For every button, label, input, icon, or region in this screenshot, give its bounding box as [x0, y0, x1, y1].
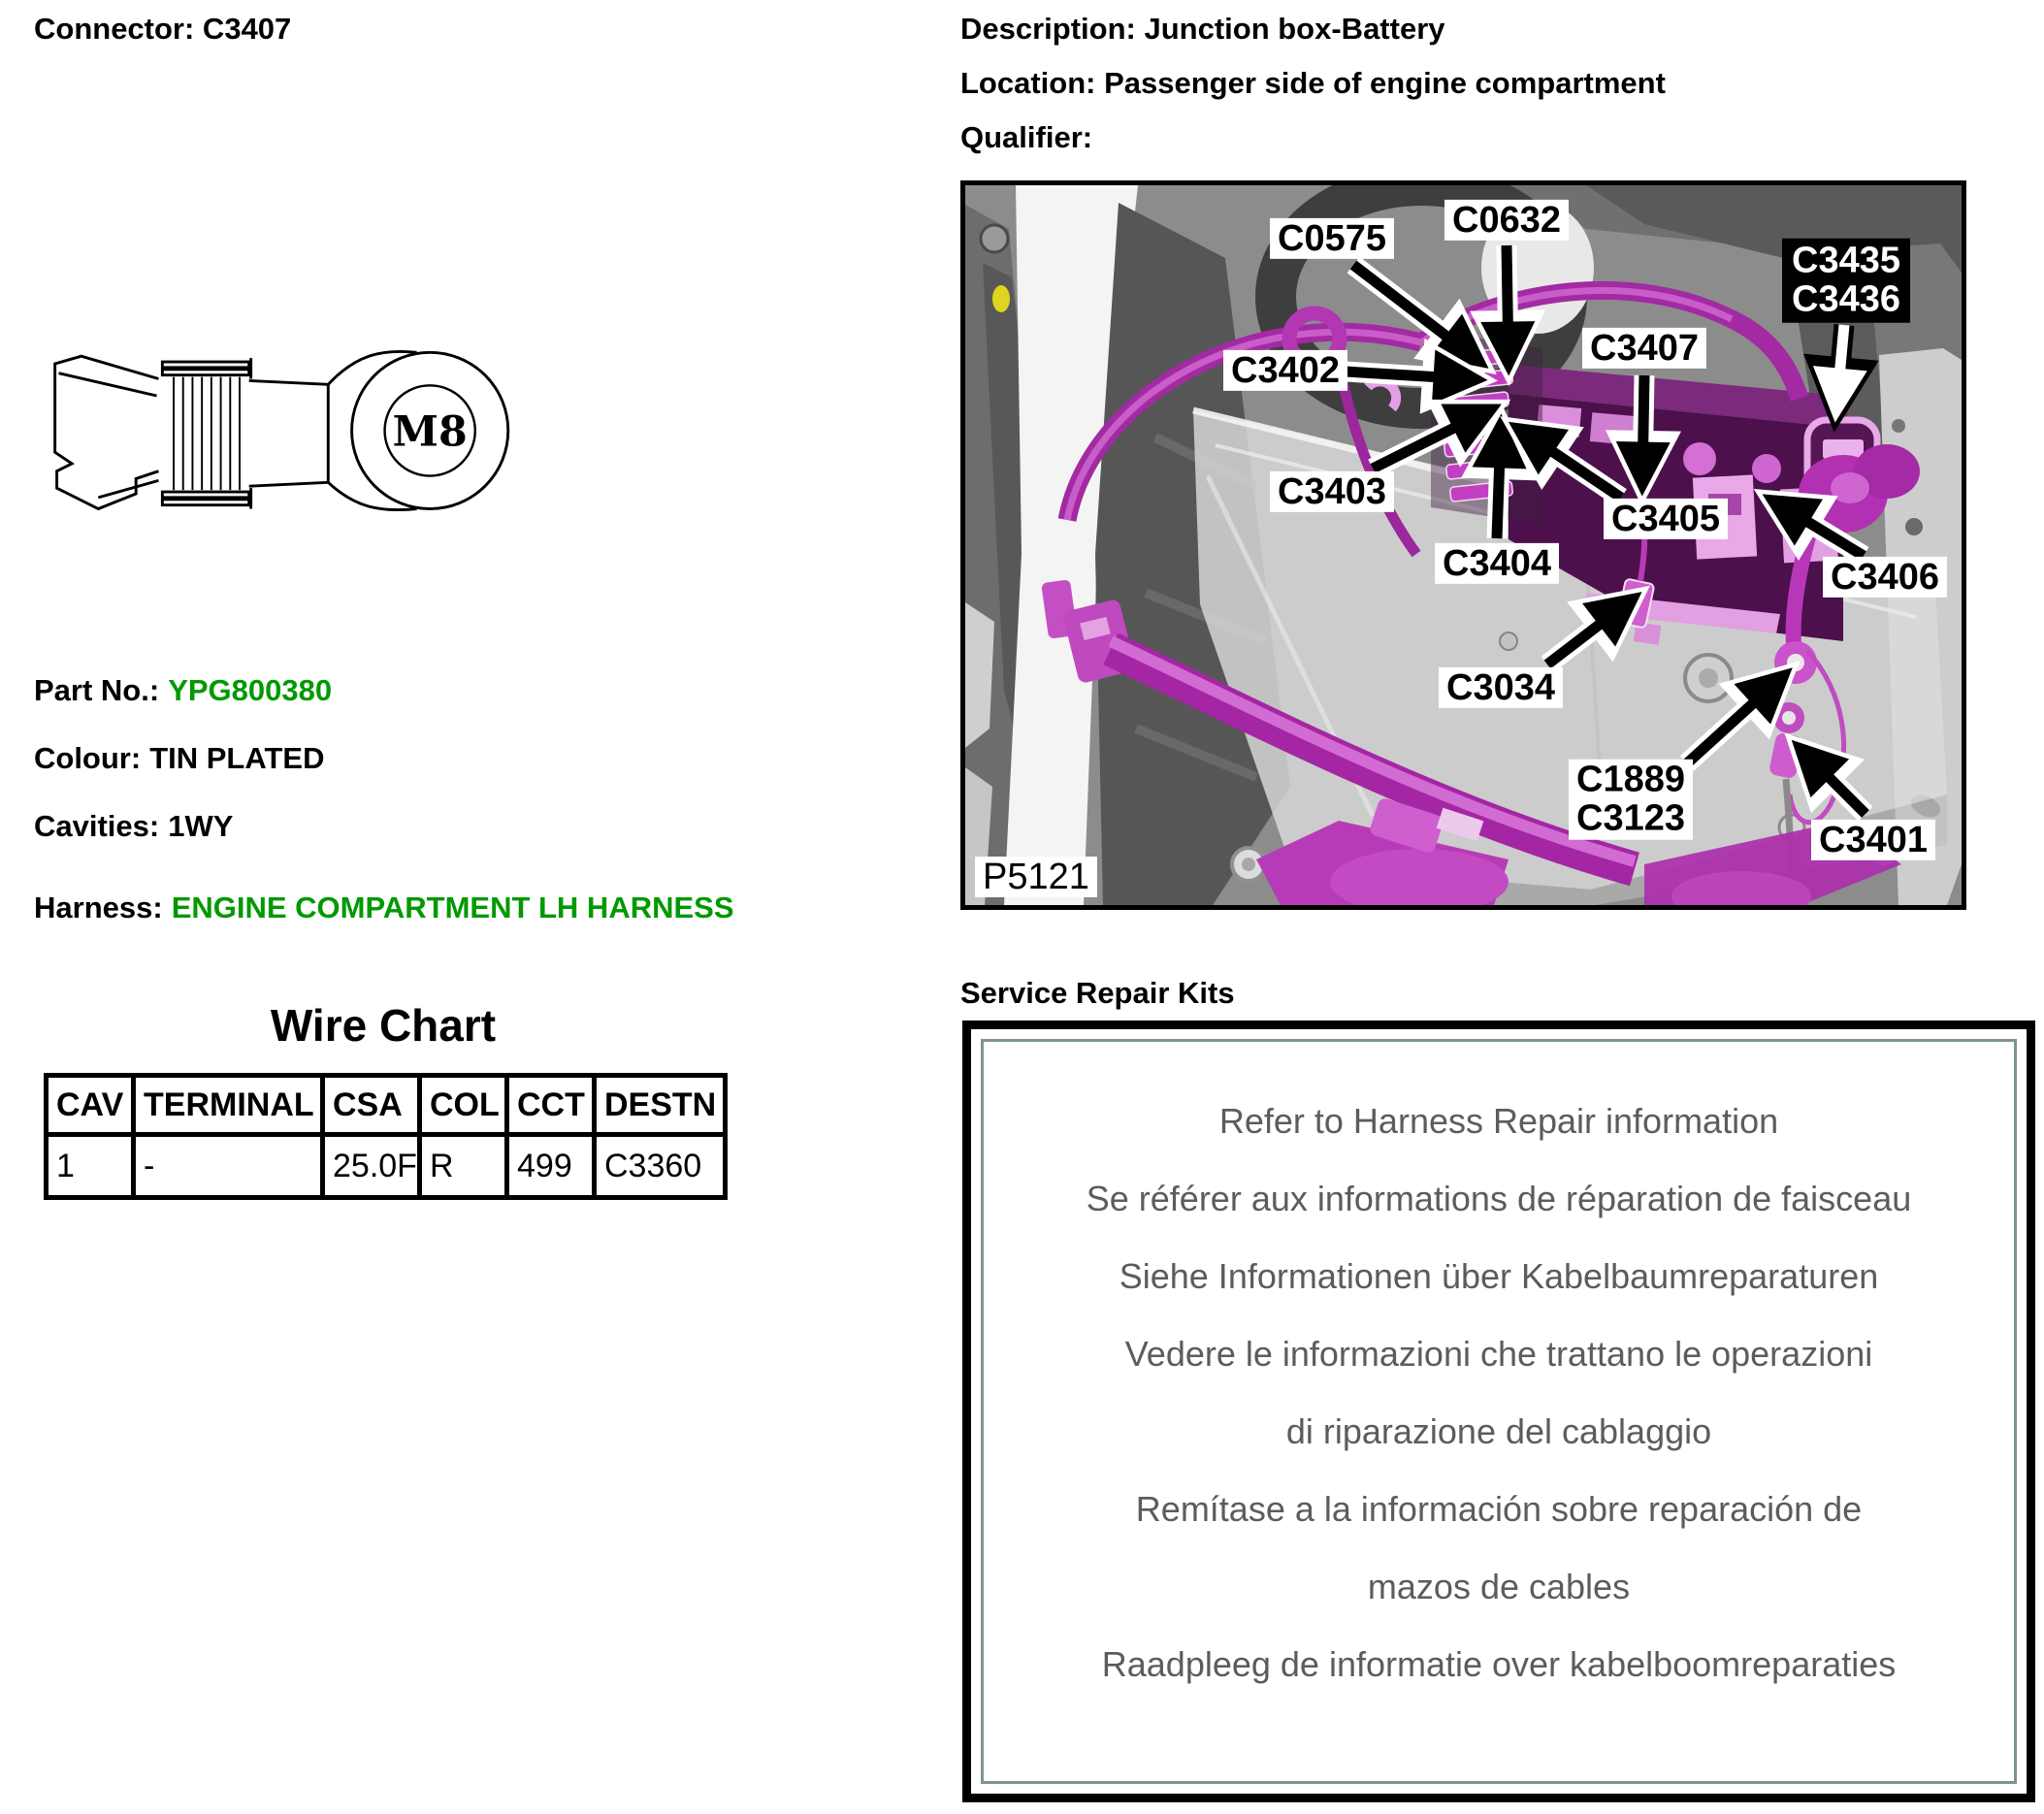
callout-c3123-line: C3123	[1576, 799, 1685, 838]
callout-c3406: C3406	[1823, 557, 1947, 598]
repair-line-it-2: di riparazione del cablaggio	[984, 1393, 2014, 1471]
cell-col: R	[420, 1135, 507, 1198]
qualifier-line: Qualifier:	[960, 120, 1092, 155]
cavities-line: Cavities:1WY	[34, 809, 233, 844]
cavities-label: Cavities:	[34, 809, 159, 843]
callout-c3405: C3405	[1604, 499, 1728, 539]
arrow-c0632	[1507, 245, 1509, 362]
harness-label: Harness:	[34, 891, 163, 924]
part-no-value: YPG800380	[168, 673, 332, 707]
wire-chart-header-row: CAV TERMINAL CSA COL CCT DESTN	[47, 1076, 726, 1135]
col-header-destn: DESTN	[595, 1076, 726, 1135]
connector-datasheet-page: { "header": { "connector_title": "Connec…	[0, 0, 2044, 1814]
description-line: Description: Junction box-Battery	[960, 12, 1445, 47]
arrow-c3402	[1346, 372, 1474, 379]
callout-c0632: C0632	[1444, 200, 1569, 241]
col-header-terminal: TERMINAL	[134, 1076, 323, 1135]
harness-value: ENGINE COMPARTMENT LH HARNESS	[172, 891, 734, 924]
part-no-label: Part No.:	[34, 673, 159, 707]
callout-c0575: C0575	[1270, 218, 1394, 259]
callout-c1889-line: C1889	[1576, 761, 1685, 799]
repair-line-fr: Se référer aux informations de réparatio…	[984, 1160, 2014, 1238]
cavities-value: 1WY	[168, 809, 233, 843]
wire-chart-data-row: 1 - 25.0F R 499 C3360	[47, 1135, 726, 1198]
cell-terminal: -	[134, 1135, 323, 1198]
connector-terminal-drawing: M8	[44, 312, 534, 511]
cell-destn: C3360	[595, 1135, 726, 1198]
repair-line-en: Refer to Harness Repair information	[984, 1083, 2014, 1160]
callout-c3435-line: C3435	[1792, 242, 1900, 280]
callout-c3435-c3436: C3435 C3436	[1782, 239, 1910, 323]
cell-cct: 499	[507, 1135, 595, 1198]
repair-line-nl: Raadpleeg de informatie over kabelboomre…	[984, 1626, 2014, 1703]
service-repair-box: Refer to Harness Repair information Se r…	[962, 1020, 2035, 1802]
colour-line: Colour:TIN PLATED	[34, 741, 324, 776]
callout-c3403: C3403	[1270, 471, 1394, 512]
location-line: Location: Passenger side of engine compa…	[960, 66, 1666, 101]
callout-c1889-c3123: C1889 C3123	[1569, 760, 1693, 840]
callout-c3034: C3034	[1439, 667, 1563, 708]
cell-cav: 1	[47, 1135, 134, 1198]
repair-line-es-1: Remítase a la información sobre reparaci…	[984, 1471, 2014, 1548]
colour-label: Colour:	[34, 741, 141, 775]
col-header-col: COL	[420, 1076, 507, 1135]
wire-chart-title: Wire Chart	[44, 999, 723, 1052]
col-header-csa: CSA	[323, 1076, 420, 1135]
repair-line-de: Siehe Informationen über Kabelbaumrepara…	[984, 1238, 2014, 1315]
connector-title: Connector: C3407	[34, 12, 291, 47]
photo-id-label: P5121	[975, 857, 1097, 897]
col-header-cct: CCT	[507, 1076, 595, 1135]
colour-value: TIN PLATED	[149, 741, 324, 775]
cell-csa: 25.0F	[323, 1135, 420, 1198]
repair-line-es-2: mazos de cables	[984, 1548, 2014, 1626]
yellow-cap	[992, 285, 1010, 312]
callout-c3401: C3401	[1811, 820, 1935, 860]
ring-size-label: M8	[393, 407, 468, 456]
location-photo: C0575 C0632 C3435 C3436 C3402 C3407 C340…	[960, 180, 1966, 910]
part-no-line: Part No.:YPG800380	[34, 673, 332, 708]
wire-chart-table: CAV TERMINAL CSA COL CCT DESTN 1 - 25.0F…	[44, 1073, 728, 1200]
arrow-c3407	[1642, 375, 1644, 482]
callout-c3404: C3404	[1435, 543, 1559, 584]
repair-line-it-1: Vedere le informazioni che trattano le o…	[984, 1315, 2014, 1393]
service-repair-title: Service Repair Kits	[960, 976, 1235, 1011]
arrow-c3404	[1497, 428, 1501, 538]
callout-c3436-line: C3436	[1792, 280, 1900, 319]
arrow-c3435-c3436	[1836, 325, 1844, 408]
service-repair-inner: Refer to Harness Repair information Se r…	[981, 1039, 2017, 1784]
callout-c3407: C3407	[1582, 328, 1706, 369]
harness-line: Harness:ENGINE COMPARTMENT LH HARNESS	[34, 891, 734, 925]
callout-c3402: C3402	[1223, 350, 1347, 391]
col-header-cav: CAV	[47, 1076, 134, 1135]
